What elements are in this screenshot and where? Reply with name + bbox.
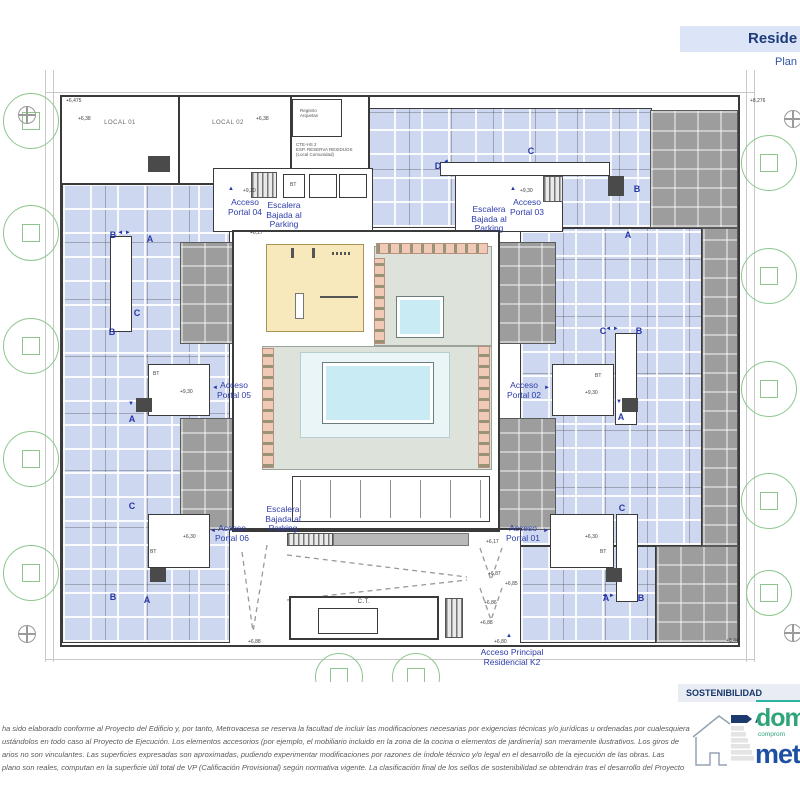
level-label: +6,85 — [505, 581, 518, 587]
direction-arrow-icon: ◄ ► — [117, 230, 131, 236]
portal-lobby — [148, 514, 210, 568]
tree-icon — [741, 361, 797, 417]
disclaimer-line: arios no son vinculantes. Las superficie… — [2, 748, 682, 761]
level-label: +6,88 — [480, 620, 493, 626]
disclaimer-line: ha sido elaborado conforme al Proyecto d… — [2, 722, 682, 735]
portal-lobby — [552, 364, 614, 416]
direction-arrow-icon: ▼ — [128, 401, 134, 407]
manhole-icon — [18, 106, 36, 124]
page-title: Reside — [748, 30, 797, 47]
level-label: +6,80 — [494, 639, 507, 645]
local-02-label: LOCAL 02 — [212, 120, 244, 126]
unit-letter: B — [110, 592, 117, 602]
stair-to-parking-label: Escalera Bajada al Parking — [471, 205, 506, 234]
portal-lobby — [550, 514, 614, 568]
unit-letter: C — [528, 146, 535, 156]
direction-arrow-icon: ◄ ► — [605, 326, 619, 332]
level-label: +6,87 — [488, 571, 501, 577]
direction-arrow-icon: ◄ ► — [601, 593, 615, 599]
plan-subtitle: Plan — [775, 56, 797, 68]
level-label: +6,475 — [66, 98, 81, 104]
portal-arrow-icon: ◄ — [212, 385, 218, 391]
logo-metrovacesa: met — [755, 739, 800, 770]
logo-dom-subtitle: comprom — [758, 731, 785, 738]
level-label: +6,30 — [183, 534, 196, 540]
level-label: +6,38 — [78, 116, 91, 122]
stair-to-parking-label: Escalera Bajada al Parking — [266, 201, 301, 230]
manhole-icon — [784, 110, 800, 128]
unit-letter: B — [634, 184, 641, 194]
elevator-core — [606, 568, 622, 582]
terrace-courtyard — [494, 418, 556, 530]
terrace-courtyard — [494, 242, 556, 344]
portal-arrow-icon: ► — [544, 385, 550, 391]
stair-hatch — [543, 176, 563, 202]
terrace-bottom-right — [656, 546, 738, 643]
unit-letter: C — [129, 501, 136, 511]
energy-arrow-icon — [731, 715, 752, 723]
unit-letter: D — [435, 161, 442, 171]
stair-to-parking-label: Escalera Bajada al Parking — [265, 505, 300, 534]
utility-room — [309, 174, 337, 198]
utility-room — [339, 174, 367, 198]
portal-label: Acceso Portal 03 — [510, 198, 544, 217]
direction-arrow-icon: ◄ — [443, 159, 449, 165]
tree-icon — [3, 431, 59, 487]
elevator-core — [622, 398, 638, 412]
level-label: +9,30 — [585, 390, 598, 396]
floor-plan-canvas: LOCAL 01 LOCAL 02 Registro Arquetas CTE-… — [0, 70, 800, 682]
manhole-icon — [784, 624, 800, 642]
elevator-core — [608, 176, 624, 196]
main-access-label: Acceso Principal Residencial K2 — [481, 648, 544, 667]
level-label: +8,276 — [750, 98, 765, 104]
level-label: +9,30 — [520, 188, 533, 194]
stair-hatch — [251, 172, 277, 198]
accent-line — [756, 700, 800, 702]
corridor — [440, 162, 610, 176]
corridor — [110, 236, 132, 332]
portal-label: Acceso Portal 05 — [217, 381, 251, 400]
level-label: +6,86 — [484, 600, 497, 606]
unit-letter: B — [109, 327, 116, 337]
level-label: +8,44 — [726, 638, 739, 644]
tree-icon — [741, 248, 797, 304]
portal-label: Acceso Portal 04 — [228, 198, 262, 217]
terrace-top-right — [650, 110, 738, 228]
manhole-icon — [18, 625, 36, 643]
logo-dom: dom — [756, 704, 800, 733]
tree-icon — [741, 473, 797, 529]
corridor — [616, 514, 638, 602]
level-label: +9,30 — [243, 188, 256, 194]
registro-label: Registro Arquetas — [300, 108, 318, 118]
elevator-core — [136, 398, 152, 412]
unit-letter: A — [625, 230, 632, 240]
portal-arrow-icon: ▲ — [228, 186, 234, 192]
level-label: +6,17 — [486, 539, 499, 545]
portal-label: Acceso Portal 02 — [507, 381, 541, 400]
tree-icon — [3, 545, 59, 601]
level-label: +6,30 — [585, 534, 598, 540]
bt-label: BT — [150, 549, 156, 555]
portal-label: Acceso Portal 01 — [506, 524, 540, 543]
disclaimer: ha sido elaborado conforme al Proyecto d… — [2, 722, 682, 774]
elevator-core — [150, 568, 166, 582]
level-label: +6,38 — [256, 116, 269, 122]
stair-hatch — [445, 598, 463, 638]
disclaimer-line: plano son reales, computan en la superfi… — [2, 761, 682, 774]
unit-letter: A — [618, 412, 625, 422]
cte-label: CTE-HS 2 ESP. RESERVA RESIDUOS (Local Co… — [296, 142, 353, 158]
portal-arrow-icon: ▲ — [510, 186, 516, 192]
level-label: +6,17 — [250, 230, 263, 236]
elevator-core — [148, 156, 170, 172]
direction-arrow-icon: ▼ — [616, 399, 622, 405]
bt-label: BT — [290, 182, 296, 188]
unit-letter: B — [110, 230, 117, 240]
tree-icon — [3, 318, 59, 374]
tree-icon — [746, 570, 792, 616]
disclaimer-line: ustándolos en todo caso al Proyecto de E… — [2, 735, 682, 748]
unit-letter: A — [129, 414, 136, 424]
local-01-label: LOCAL 01 — [104, 120, 136, 126]
unit-letter: A — [144, 595, 151, 605]
bt-label: BT — [600, 549, 606, 555]
level-label: +6,88 — [248, 639, 261, 645]
tree-icon — [741, 135, 797, 191]
bt-label: BT — [595, 373, 601, 379]
tree-icon — [392, 653, 440, 682]
tree-icon — [3, 205, 59, 261]
tree-icon — [315, 653, 363, 682]
level-label: +9,30 — [180, 389, 193, 395]
street-line — [45, 92, 755, 93]
unit-letter: C — [619, 503, 626, 513]
ct-label: C.T. — [358, 599, 371, 605]
unit-letter: A — [147, 234, 154, 244]
sustainability-title: SOSTENIBILIDAD — [686, 688, 762, 698]
terrace-right-strip — [702, 228, 738, 546]
courtyard-outline — [232, 230, 500, 532]
portal-label: Acceso Portal 06 — [215, 524, 249, 543]
wall — [178, 95, 180, 185]
bt-label: BT — [153, 371, 159, 377]
portal-arrow-icon: ◄ — [210, 528, 216, 534]
unit-letter: C — [134, 308, 141, 318]
unit-letter: B — [636, 326, 643, 336]
unit-letter: B — [638, 593, 645, 603]
ct-transformer — [318, 608, 378, 634]
portal-arrow-icon: ► — [543, 528, 549, 534]
